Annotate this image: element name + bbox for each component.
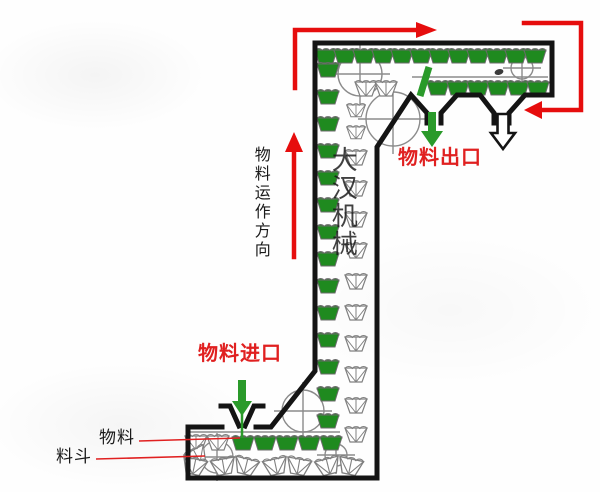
full-bucket: [317, 332, 339, 347]
empty-bucket: [355, 80, 377, 96]
flow-arrow-up: [285, 132, 303, 257]
full-bucket: [317, 413, 339, 428]
full-bucket: [317, 305, 339, 320]
discharge-stream: [420, 67, 429, 96]
full-bucket: [524, 48, 546, 63]
empty-bucket: [345, 366, 367, 382]
full-bucket: [298, 435, 320, 450]
outlet-label: 物料出口: [398, 147, 482, 168]
empty-bucket: [345, 273, 367, 289]
empty-bucket: [262, 455, 289, 477]
empty-bucket: [232, 455, 260, 477]
flow-direction-label: 物料运作方向: [252, 146, 269, 264]
inlet-label: 物料进口: [198, 343, 282, 364]
empty-bucket: [285, 455, 312, 476]
full-bucket: [317, 62, 339, 77]
full-bucket: [487, 80, 509, 95]
empty-bucket: [347, 104, 366, 117]
belt-fastener: [494, 68, 504, 76]
full-bucket: [317, 116, 339, 131]
empty-bucket: [345, 397, 367, 413]
empty-bucket: [347, 126, 366, 139]
bucket-label: 料斗: [56, 449, 92, 467]
full-bucket: [320, 435, 342, 450]
full-bucket: [317, 89, 339, 104]
inlet-arrow-green: [232, 380, 252, 438]
empty-bucket: [337, 455, 364, 477]
empty-bucket: [207, 434, 229, 450]
full-bucket: [427, 80, 449, 95]
empty-bucket: [375, 80, 397, 96]
empty-bucket: [345, 426, 367, 442]
empty-bucket: [345, 335, 367, 351]
full-bucket: [317, 359, 339, 374]
empty-bucket: [345, 304, 367, 320]
watermark: 大汉机械: [328, 146, 355, 266]
full-bucket: [276, 435, 298, 450]
elevator-diagram: [0, 0, 600, 492]
diagram-canvas: 物料出口 物料进口 物料运作方向 物料 料斗 大汉机械: [0, 0, 600, 492]
full-bucket: [317, 278, 339, 293]
material-label: 物料: [99, 430, 135, 448]
full-bucket: [254, 435, 276, 450]
full-bucket: [317, 386, 339, 401]
